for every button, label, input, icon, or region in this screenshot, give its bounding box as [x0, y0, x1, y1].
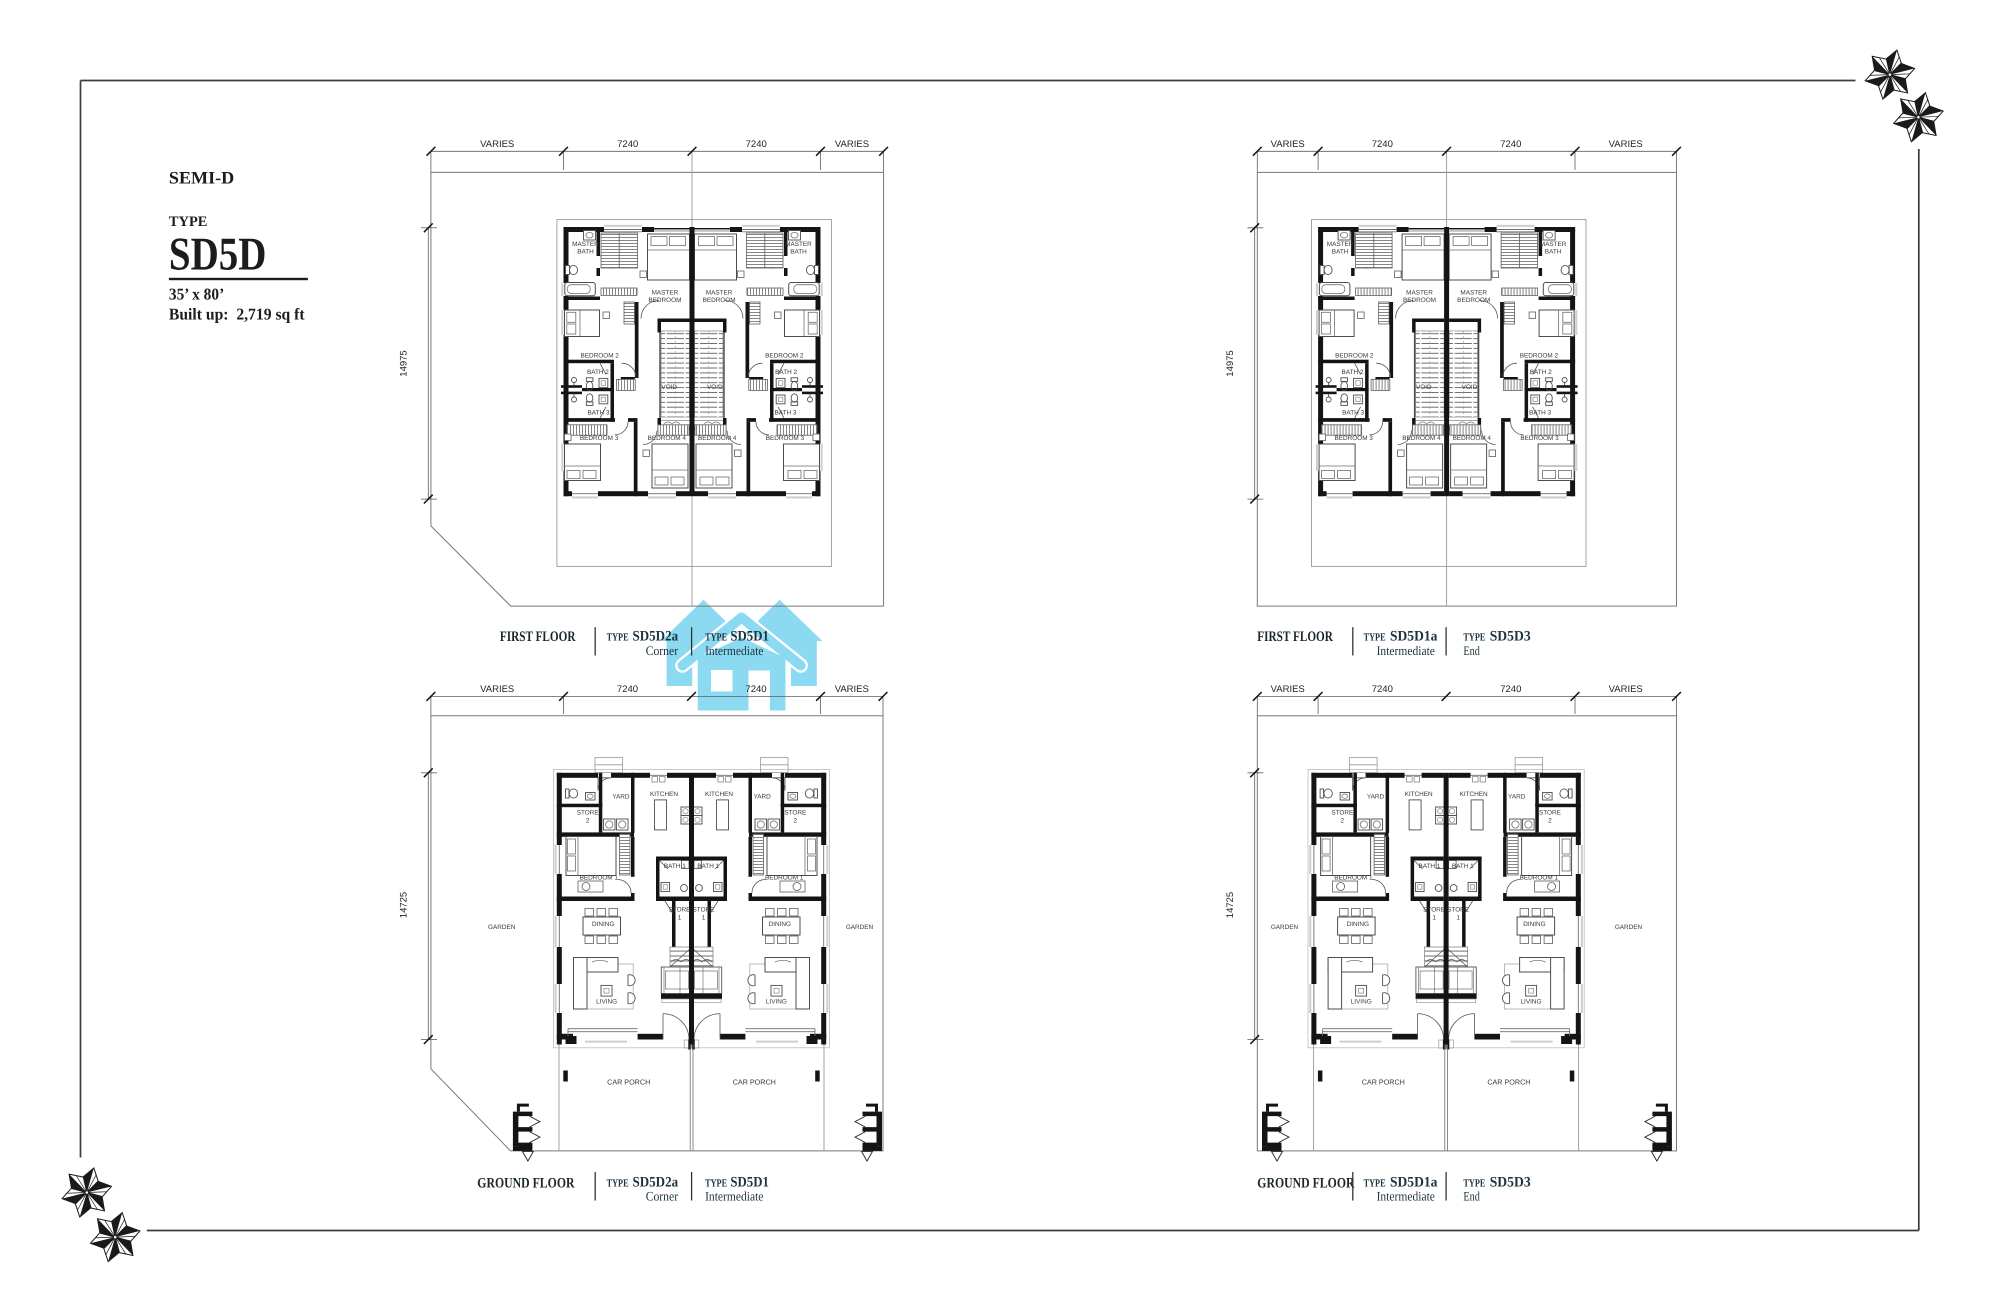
svg-text:FIRST FLOOR: FIRST FLOOR — [500, 629, 576, 645]
svg-text:SD5D3: SD5D3 — [1490, 629, 1531, 645]
svg-text:14725: 14725 — [1225, 892, 1236, 918]
svg-text:SD5D3: SD5D3 — [1490, 1175, 1531, 1191]
svg-text:7240: 7240 — [617, 139, 638, 150]
svg-text:7240: 7240 — [745, 684, 766, 695]
svg-text:FIRST FLOOR: FIRST FLOOR — [1257, 629, 1333, 645]
svg-text:GARDEN: GARDEN — [1615, 924, 1643, 931]
svg-text:End: End — [1463, 643, 1480, 658]
svg-text:SEMI-D: SEMI-D — [169, 168, 234, 188]
svg-text:TYPE: TYPE — [607, 1178, 629, 1190]
svg-text:TYPE: TYPE — [1364, 632, 1386, 644]
svg-text:Intermediate: Intermediate — [1377, 643, 1436, 658]
svg-text:TYPE: TYPE — [607, 632, 629, 644]
svg-text:7240: 7240 — [617, 684, 638, 695]
svg-text:SD5D: SD5D — [169, 229, 267, 281]
svg-text:Built up: 2,719 sq ft: Built up: 2,719 sq ft — [169, 305, 305, 324]
svg-text:GARDEN: GARDEN — [488, 924, 516, 931]
svg-text:VARIES: VARIES — [1271, 684, 1305, 695]
svg-text:GROUND FLOOR: GROUND FLOOR — [1257, 1176, 1355, 1192]
svg-text:TYPE: TYPE — [705, 632, 727, 644]
svg-text:7240: 7240 — [1500, 139, 1521, 150]
svg-text:VARIES: VARIES — [835, 139, 869, 150]
svg-text:VARIES: VARIES — [1609, 139, 1643, 150]
svg-text:Corner: Corner — [646, 1189, 679, 1204]
svg-text:Intermediate: Intermediate — [1377, 1189, 1436, 1204]
svg-text:VARIES: VARIES — [1609, 684, 1643, 695]
svg-text:7240: 7240 — [1372, 139, 1393, 150]
svg-text:Intermediate: Intermediate — [705, 643, 764, 658]
svg-text:7240: 7240 — [1372, 684, 1393, 695]
svg-text:7240: 7240 — [746, 139, 767, 150]
svg-text:VARIES: VARIES — [480, 684, 514, 695]
svg-text:GROUND FLOOR: GROUND FLOOR — [477, 1176, 575, 1192]
svg-text:GARDEN: GARDEN — [1271, 924, 1299, 931]
svg-text:Intermediate: Intermediate — [705, 1189, 764, 1204]
svg-text:TYPE: TYPE — [1463, 632, 1485, 644]
svg-text:14975: 14975 — [399, 350, 410, 376]
svg-text:VARIES: VARIES — [1271, 139, 1305, 150]
svg-text:14725: 14725 — [399, 892, 410, 918]
svg-text:7240: 7240 — [1500, 684, 1521, 695]
svg-text:End: End — [1463, 1189, 1480, 1204]
svg-text:35’ x 80’: 35’ x 80’ — [169, 285, 224, 304]
svg-text:GARDEN: GARDEN — [846, 924, 874, 931]
svg-text:Corner: Corner — [646, 643, 679, 658]
svg-text:14975: 14975 — [1225, 350, 1236, 376]
svg-text:VARIES: VARIES — [480, 139, 514, 150]
svg-text:VARIES: VARIES — [835, 684, 869, 695]
